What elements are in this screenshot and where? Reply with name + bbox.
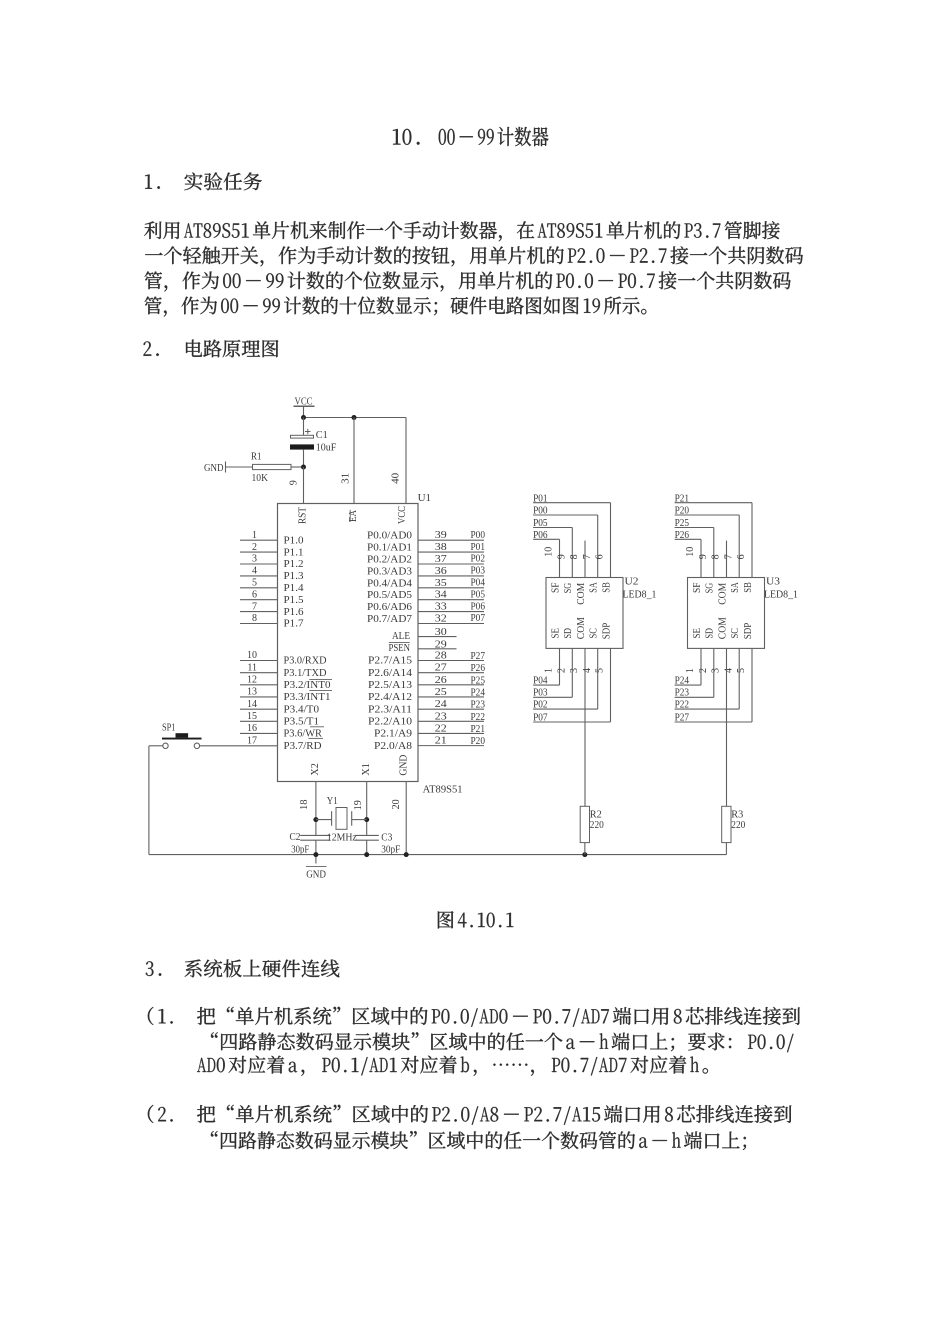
- svg-text:34: 34: [435, 590, 447, 601]
- svg-text:P0.2/AD2: P0.2/AD2: [367, 555, 412, 566]
- svg-text:35: 35: [435, 578, 447, 589]
- svg-text:22: 22: [435, 723, 447, 734]
- svg-text:32: 32: [435, 614, 447, 625]
- svg-text:COM: COM: [717, 617, 728, 639]
- svg-text:P2.5/A13: P2.5/A13: [368, 680, 412, 691]
- svg-text:COM: COM: [717, 583, 728, 605]
- svg-text:3: 3: [252, 554, 257, 565]
- svg-text:GND: GND: [204, 463, 224, 474]
- svg-text:8: 8: [711, 554, 722, 559]
- svg-text:8: 8: [252, 613, 257, 624]
- svg-text:P00: P00: [471, 530, 486, 541]
- svg-text:P2.2/A10: P2.2/A10: [368, 717, 412, 728]
- svg-text:12MHz: 12MHz: [327, 833, 358, 844]
- svg-text:14: 14: [247, 699, 257, 710]
- svg-text:10: 10: [685, 547, 696, 557]
- svg-text:P3.2/INT0: P3.2/INT0: [284, 680, 331, 691]
- svg-text:220: 220: [731, 820, 745, 831]
- svg-text:220: 220: [590, 820, 604, 831]
- svg-text:4: 4: [723, 668, 734, 673]
- svg-text:6: 6: [736, 554, 747, 559]
- svg-text:GND: GND: [306, 870, 326, 881]
- svg-text:9: 9: [698, 554, 709, 559]
- svg-text:P2.3/A11: P2.3/A11: [368, 704, 412, 715]
- svg-text:P0.0/AD0: P0.0/AD0: [367, 531, 412, 542]
- svg-text:5: 5: [595, 668, 606, 673]
- svg-text:37: 37: [435, 554, 447, 565]
- svg-text:21: 21: [435, 736, 447, 747]
- svg-text:36: 36: [435, 566, 447, 577]
- svg-text:13: 13: [247, 687, 257, 698]
- svg-text:P2.4/A12: P2.4/A12: [368, 692, 412, 703]
- svg-text:P0.6/AD6: P0.6/AD6: [367, 602, 412, 613]
- svg-text:P06: P06: [471, 601, 486, 612]
- svg-text:P03: P03: [471, 566, 486, 577]
- svg-text:SB: SB: [601, 582, 612, 593]
- svg-text:P0.5/AD5: P0.5/AD5: [367, 590, 412, 601]
- svg-text:P3.3/INT1: P3.3/INT1: [284, 692, 331, 703]
- svg-text:33: 33: [435, 602, 447, 613]
- svg-text:7: 7: [582, 554, 593, 559]
- svg-text:29: 29: [435, 640, 447, 651]
- svg-text:LED8_1: LED8_1: [623, 590, 657, 601]
- svg-text:R3: R3: [731, 810, 743, 821]
- svg-text:P1.6: P1.6: [284, 607, 304, 618]
- svg-text:P3.5/T1: P3.5/T1: [284, 717, 320, 728]
- svg-text:5: 5: [736, 668, 747, 673]
- svg-text:P2.1/A9: P2.1/A9: [374, 729, 412, 740]
- svg-text:COM: COM: [576, 583, 587, 605]
- svg-text:12: 12: [247, 675, 257, 686]
- svg-text:ALE: ALE: [392, 631, 410, 642]
- svg-text:6: 6: [595, 554, 606, 559]
- svg-text:SF: SF: [550, 582, 561, 593]
- svg-text:P2.7/A15: P2.7/A15: [368, 656, 412, 667]
- svg-text:25: 25: [435, 687, 447, 698]
- svg-text:1: 1: [252, 530, 257, 541]
- svg-text:P23: P23: [471, 700, 486, 711]
- svg-text:SG: SG: [705, 583, 716, 594]
- svg-text:16: 16: [247, 723, 257, 734]
- svg-text:SDP: SDP: [743, 622, 754, 639]
- svg-text:SG: SG: [563, 583, 574, 594]
- svg-text:P27: P27: [471, 651, 486, 662]
- svg-text:U3: U3: [766, 577, 780, 588]
- svg-text:20: 20: [391, 799, 402, 809]
- svg-text:SC: SC: [730, 628, 741, 639]
- svg-text:30pF: 30pF: [291, 844, 309, 855]
- svg-text:26: 26: [435, 675, 447, 686]
- svg-text:31: 31: [341, 473, 352, 484]
- svg-text:C3: C3: [381, 832, 392, 843]
- svg-text:40: 40: [390, 473, 401, 484]
- svg-text:9: 9: [289, 480, 300, 485]
- svg-text:P20: P20: [471, 736, 486, 747]
- svg-text:U1: U1: [418, 493, 432, 504]
- svg-text:11: 11: [247, 662, 257, 673]
- svg-text:P1.3: P1.3: [284, 571, 304, 582]
- svg-text:17: 17: [247, 735, 257, 746]
- svg-text:VCC: VCC: [397, 506, 408, 524]
- svg-text:6: 6: [252, 589, 257, 600]
- svg-text:P3.7/RD: P3.7/RD: [284, 741, 322, 752]
- svg-text:X1: X1: [361, 763, 372, 776]
- svg-text:AT89S51: AT89S51: [423, 785, 463, 796]
- svg-text:SB: SB: [743, 582, 754, 593]
- svg-text:Y1: Y1: [327, 796, 338, 807]
- svg-text:9: 9: [557, 554, 568, 559]
- svg-text:P0.3/AD3: P0.3/AD3: [367, 566, 412, 577]
- svg-text:10K: 10K: [252, 473, 269, 484]
- svg-text:30: 30: [435, 627, 447, 638]
- svg-text:7: 7: [252, 601, 257, 612]
- svg-text:30pF: 30pF: [381, 844, 400, 855]
- svg-text:P1.7: P1.7: [284, 619, 304, 630]
- svg-text:P1.1: P1.1: [284, 547, 304, 558]
- svg-text:P1.4: P1.4: [284, 583, 304, 594]
- svg-text:39: 39: [435, 530, 447, 541]
- svg-text:SA: SA: [730, 582, 741, 593]
- svg-text:RST: RST: [297, 507, 308, 524]
- svg-text:P25: P25: [471, 675, 486, 686]
- svg-text:28: 28: [435, 651, 447, 662]
- svg-text:C1: C1: [316, 430, 328, 441]
- svg-text:8: 8: [569, 554, 580, 559]
- svg-text:10: 10: [544, 547, 555, 557]
- svg-text:P01: P01: [471, 542, 486, 553]
- svg-text:P21: P21: [471, 724, 486, 735]
- svg-text:R2: R2: [590, 810, 602, 821]
- svg-text:P0.7/AD7: P0.7/AD7: [367, 614, 412, 625]
- svg-text:U2: U2: [625, 577, 639, 588]
- svg-text:SD: SD: [705, 628, 716, 639]
- svg-text:4: 4: [582, 668, 593, 673]
- svg-text:P24: P24: [471, 687, 486, 698]
- svg-text:3: 3: [711, 668, 722, 673]
- svg-text:10: 10: [247, 650, 257, 661]
- svg-text:SDP: SDP: [601, 622, 612, 639]
- svg-text:P2.6/A14: P2.6/A14: [368, 668, 412, 679]
- svg-text:18: 18: [299, 800, 310, 811]
- svg-text:P2.0/A8: P2.0/A8: [374, 741, 412, 752]
- svg-text:5: 5: [252, 578, 257, 589]
- svg-text:P1.0: P1.0: [284, 535, 304, 546]
- svg-text:GND: GND: [399, 755, 410, 776]
- svg-text:P26: P26: [471, 663, 486, 674]
- svg-text:P05: P05: [471, 589, 486, 600]
- svg-text:P1.2: P1.2: [284, 559, 304, 570]
- svg-text:27: 27: [435, 663, 447, 674]
- svg-text:3: 3: [569, 668, 580, 673]
- svg-text:1: 1: [685, 668, 696, 673]
- svg-text:SF: SF: [692, 582, 703, 593]
- svg-text:23: 23: [435, 711, 447, 722]
- svg-text:P02: P02: [471, 554, 486, 565]
- svg-text:10uF: 10uF: [316, 442, 337, 453]
- svg-text:SA: SA: [589, 582, 600, 593]
- svg-text:X2: X2: [310, 763, 321, 776]
- svg-text:C2: C2: [290, 832, 301, 843]
- svg-text:SC: SC: [589, 628, 600, 639]
- svg-text:1: 1: [544, 668, 555, 673]
- svg-text:P3.0/RXD: P3.0/RXD: [284, 656, 327, 667]
- svg-text:PSEN: PSEN: [389, 643, 411, 654]
- svg-text:P07: P07: [471, 613, 486, 624]
- svg-text:SE: SE: [550, 628, 561, 639]
- svg-text:SD: SD: [563, 628, 574, 639]
- svg-text:7: 7: [723, 554, 734, 559]
- svg-text:38: 38: [435, 542, 447, 553]
- svg-text:P0.1/AD1: P0.1/AD1: [367, 543, 412, 554]
- svg-text:P04: P04: [471, 578, 486, 589]
- svg-text:SP1: SP1: [162, 723, 176, 734]
- svg-text:LED8_1: LED8_1: [764, 590, 798, 601]
- svg-text:2: 2: [698, 668, 709, 673]
- svg-text:15: 15: [247, 711, 257, 722]
- svg-text:4: 4: [252, 566, 257, 577]
- svg-text:2: 2: [557, 668, 568, 673]
- svg-text:P3.1/TXD: P3.1/TXD: [284, 668, 327, 679]
- svg-text:P22: P22: [471, 712, 486, 723]
- svg-text:19: 19: [353, 800, 364, 810]
- svg-text:P0.4/AD4: P0.4/AD4: [367, 578, 412, 589]
- svg-text:P1.5: P1.5: [284, 595, 304, 606]
- svg-text:SE: SE: [692, 628, 703, 639]
- svg-text:R1: R1: [251, 452, 262, 463]
- svg-text:P3.4/T0: P3.4/T0: [284, 704, 320, 715]
- svg-text:24: 24: [435, 699, 447, 710]
- svg-text:COM: COM: [576, 617, 587, 639]
- svg-text:2: 2: [252, 542, 257, 553]
